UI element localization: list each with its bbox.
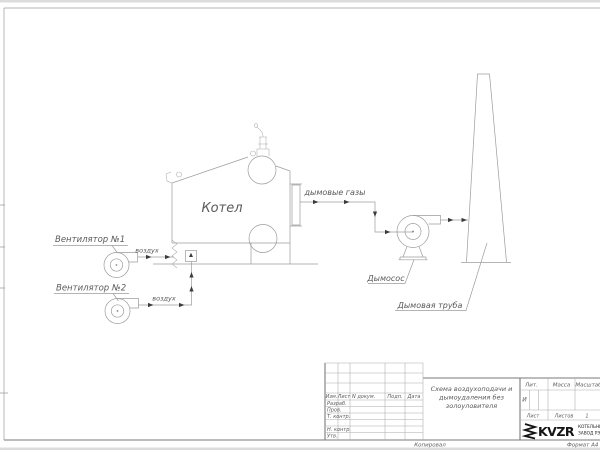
svg-text:золоуловителя: золоуловителя <box>446 402 498 410</box>
row-prov: Пров. <box>327 407 342 413</box>
company-line2: ЗАВОД РЭ <box>578 431 600 437</box>
sheet-top-edge <box>0 0 600 3</box>
exhauster-callout: Дымосос <box>366 260 414 284</box>
row-tcontr: Т. контр. <box>327 414 350 420</box>
document-title: Схема воздухоподачи и дымоудаления без з… <box>431 385 513 410</box>
boiler-label: Котел <box>201 201 242 216</box>
fan1-label: Вентилятор №1 <box>55 235 125 245</box>
fan2-symbol <box>105 299 139 324</box>
svg-text:Схема воздухоподачи и: Схема воздухоподачи и <box>431 385 513 393</box>
fan1-air-label: воздух <box>135 247 159 255</box>
fan1-symbol <box>104 253 138 278</box>
spring-icon <box>525 424 535 439</box>
fan2-label: Вентилятор №2 <box>56 284 126 294</box>
col-izm: Изм. <box>326 394 338 400</box>
row-ncontr: Н. контр. <box>327 427 351 433</box>
drawing-sheet: Котел воздух Вентилятор №1 воздух Вентил… <box>0 0 600 450</box>
sheets-label: Листов <box>554 413 574 419</box>
svg-text:дымоудаления без: дымоудаления без <box>438 394 504 402</box>
scale-header: Масштаб <box>575 383 600 389</box>
lit-value: И <box>522 397 527 404</box>
col-docnum: N докум. <box>352 394 375 400</box>
boiler-symbol: Котел <box>166 124 302 268</box>
logo-text: KVZR <box>538 424 575 439</box>
row-razrab: Разраб. <box>327 401 347 407</box>
chimney-callout: Дымовая труба <box>395 243 487 311</box>
safety-valve-symbol <box>254 124 269 156</box>
fan2-air-label: воздух <box>152 295 176 303</box>
sheets-value: 1 <box>585 413 588 419</box>
chimney-symbol <box>461 74 511 263</box>
flue-gas-line <box>300 200 413 234</box>
exhauster-outlet-line <box>441 218 469 222</box>
company-line1: КОТЕЛЬНЫЙ <box>578 423 600 430</box>
schematic-drawing: Котел воздух Вентилятор №1 воздух Вентил… <box>0 0 600 450</box>
kvzr-logo: KVZR КОТЕЛЬНЫЙ ЗАВОД РЭ <box>525 423 600 439</box>
mass-header: Масса <box>553 383 571 389</box>
col-date: Дата <box>407 394 421 400</box>
title-block: Изм. Лист N докум. Подп. Дата Разраб. Пр… <box>325 363 600 440</box>
copied-label: Копировал <box>414 442 446 448</box>
col-sign: Подп. <box>387 394 402 400</box>
flue-gas-label: дымовые газы <box>304 188 366 197</box>
exhauster-label: Дымосос <box>366 274 405 283</box>
lit-header: Лит. <box>524 383 538 389</box>
format-label: Формат А4 <box>567 442 599 448</box>
fan1-air-line <box>138 255 175 259</box>
chimney-label: Дымовая труба <box>397 301 463 310</box>
row-utv: Утв. <box>327 434 338 440</box>
sheet-label: Лист <box>526 413 541 419</box>
fan1-callout: Вентилятор №1 <box>53 235 128 253</box>
exhauster-symbol <box>397 216 441 260</box>
col-list: Лист <box>337 394 352 400</box>
